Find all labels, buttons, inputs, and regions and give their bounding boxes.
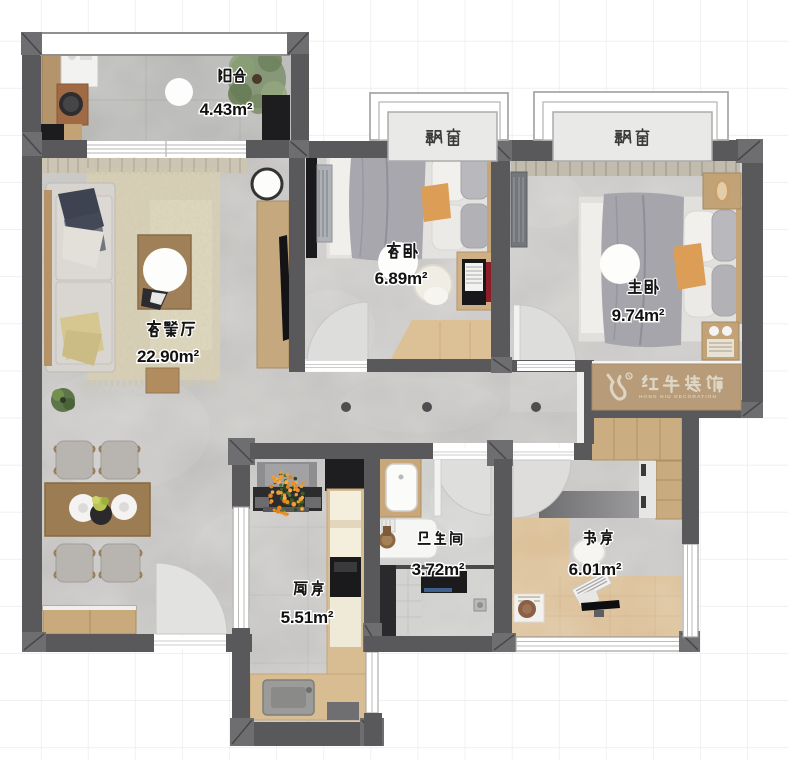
- svg-text:9.74m²: 9.74m²: [612, 306, 665, 325]
- svg-text:3.72m²: 3.72m²: [412, 560, 465, 579]
- svg-text:4.43m²: 4.43m²: [200, 100, 253, 119]
- svg-text:6.01m²: 6.01m²: [569, 560, 622, 579]
- svg-text:6.89m²: 6.89m²: [375, 269, 428, 288]
- svg-text:5.51m²: 5.51m²: [281, 608, 334, 627]
- svg-text:22.90m²: 22.90m²: [137, 347, 199, 366]
- svg-text:HONG NIU DECORATION: HONG NIU DECORATION: [639, 394, 717, 400]
